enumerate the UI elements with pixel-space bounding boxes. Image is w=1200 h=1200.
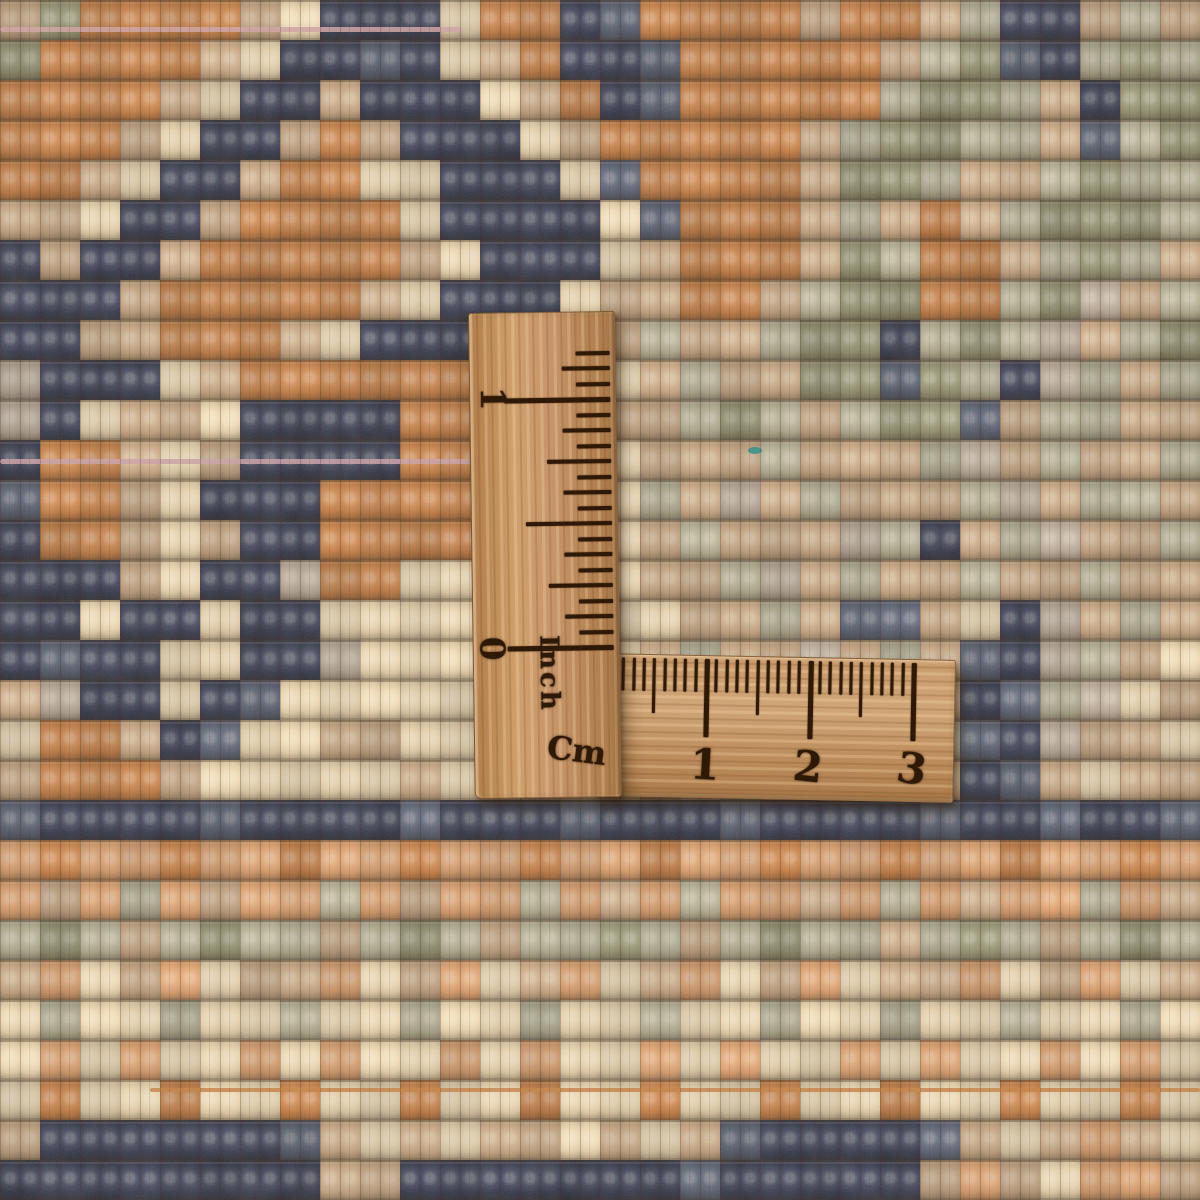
rug-knot [160,160,200,200]
rug-knot [1120,1080,1160,1120]
rug-knot [1160,1120,1200,1160]
rug-knot [400,1000,440,1040]
rug-knot [0,0,40,40]
rug-knot [1120,800,1160,840]
rug-knot [800,200,840,240]
rug-knot [800,480,840,520]
rug-knot [280,600,320,640]
rug-knot [920,280,960,320]
rug-knot [0,360,40,400]
rug-knot [680,840,720,880]
rug-knot [0,680,40,720]
rug-knot [320,1120,360,1160]
rug-knot [240,1120,280,1160]
rug-knot [480,200,520,240]
rug-knot [840,600,880,640]
rug-knot [160,200,200,240]
rug-knot [680,120,720,160]
rug-knot [960,240,1000,280]
rug-knot [760,600,800,640]
rug-knot [200,40,240,80]
rug-knot [40,40,80,80]
rug-knot [720,160,760,200]
rug-knot [1040,400,1080,440]
rug-knot [280,1080,320,1120]
rug-knot [1000,120,1040,160]
rug-knot [160,0,200,40]
rug-knot [800,1160,840,1200]
rug-knot [1000,880,1040,920]
rug-knot [880,1080,920,1120]
rug-knot [400,960,440,1000]
rug-knot [560,960,600,1000]
rug-knot [40,720,80,760]
rug-knot [240,200,280,240]
rug-knot [440,1160,480,1200]
rug-knot [360,880,400,920]
rug-knot [880,1160,920,1200]
rug-knot [920,480,960,520]
rug-knot [120,720,160,760]
inch-tick [549,583,613,588]
rug-knot [880,960,920,1000]
rug-knot [1040,1120,1080,1160]
rug-knot [200,1160,240,1200]
rug-knot [40,840,80,880]
rug-knot [160,880,200,920]
rug-knot [960,40,1000,80]
rug-knot [800,320,840,360]
cm-tick [746,660,750,693]
rug-knot [840,1080,880,1120]
rug-knot [880,480,920,520]
rug-knot [920,160,960,200]
rug-knot [1080,520,1120,560]
rug-knot [160,480,200,520]
rug-knot [240,240,280,280]
rug-knot [480,1160,520,1200]
rug-knot [160,920,200,960]
rug-knot [960,160,1000,200]
rug-knot [360,800,400,840]
rug-knot [1120,680,1160,720]
rug-knot [80,560,120,600]
rug-knot [880,360,920,400]
rug-knot [120,1080,160,1120]
rug-knot [200,920,240,960]
rug-knot [400,1080,440,1120]
rug-knot [320,960,360,1000]
rug-knot [320,760,360,800]
rug-knot [720,880,760,920]
rug-knot [840,800,880,840]
rug-knot [80,1040,120,1080]
cm-unit-label: Cm [545,731,608,770]
rug-knot [1000,320,1040,360]
rug-knot [80,1120,120,1160]
rug-knot [240,80,280,120]
rug-knot [480,840,520,880]
rug-knot [920,600,960,640]
rug-knot [1000,520,1040,560]
rug-knot [1000,80,1040,120]
rug-knot [320,920,360,960]
rug-knot [640,1080,680,1120]
rug-knot [440,0,480,40]
rug-knot [1040,1160,1080,1200]
rug-knot [1160,960,1200,1000]
rug-knot [1040,320,1080,360]
rug-knot [440,120,480,160]
rug-knot [80,1000,120,1040]
rug-knot [640,600,680,640]
rug-knot [240,640,280,680]
rug-knot [960,1080,1000,1120]
rug-knot [320,800,360,840]
rug-knot [240,120,280,160]
rug-knot [680,880,720,920]
rug-knot [680,40,720,80]
rug-knot [240,560,280,600]
rug-knot [840,320,880,360]
rug-knot [1080,1040,1120,1080]
rug-knot [1120,1000,1160,1040]
rug-knot [600,1120,640,1160]
rug-knot [1160,840,1200,880]
rug-knot [1120,520,1160,560]
rug-knot [0,560,40,600]
rug-knot [680,360,720,400]
rug-knot [40,520,80,560]
rug-knot [160,800,200,840]
cm-tick [849,662,853,695]
rug-knot [40,200,80,240]
rug-knot [0,720,40,760]
rug-knot [960,600,1000,640]
cm-tick [766,660,770,693]
cm-tick [642,658,646,691]
rug-knot [440,960,480,1000]
rug-knot [80,120,120,160]
rug-knot [840,120,880,160]
rug-knot [40,1000,80,1040]
rug-knot [680,520,720,560]
rug-knot [400,40,440,80]
rug-knot [280,320,320,360]
cm-tick [777,660,781,693]
rug-knot [0,1080,40,1120]
rug-knot [120,360,160,400]
rug-knot [520,1000,560,1040]
rug-knot [40,240,80,280]
rug-knot [1080,800,1120,840]
cm-tick [621,658,625,691]
rug-knot [240,840,280,880]
rug-knot [120,1160,160,1200]
rug-knot [200,1120,240,1160]
rug-knot [320,240,360,280]
rug-knot [1080,920,1120,960]
rug-knot [1120,1040,1160,1080]
rug-knot [840,440,880,480]
rug-knot [440,200,480,240]
rug-knot [400,1160,440,1200]
rug-knot [240,920,280,960]
rug-knot [840,480,880,520]
cm-tick [663,658,667,691]
rug-knot [320,200,360,240]
rug-knot [40,360,80,400]
rug-knot [840,80,880,120]
rug-knot [240,0,280,40]
rug-knot [80,520,120,560]
rug-knot [0,120,40,160]
rug-knot [480,1040,520,1080]
rug-knot [840,520,880,560]
rug-knot [160,520,200,560]
rug-knot [400,240,440,280]
rug-knot [520,160,560,200]
rug-knot [160,1120,200,1160]
rug-knot [40,1040,80,1080]
rug-knot [0,840,40,880]
inch-tick [579,599,613,603]
rug-knot [880,600,920,640]
rug-knot [360,1040,400,1080]
rug-knot [40,280,80,320]
rug-knot [120,1120,160,1160]
rug-knot [1120,320,1160,360]
rug-knot [280,880,320,920]
rug-knot [400,400,440,440]
rug-knot [400,760,440,800]
rug-knot [760,400,800,440]
rug-knot [160,1000,200,1040]
rug-knot [0,480,40,520]
rug-knot [720,280,760,320]
rug-knot [1080,160,1120,200]
rug-knot [1160,920,1200,960]
rug-knot [880,120,920,160]
rug-knot [120,640,160,680]
rug-knot [360,560,400,600]
rug-knot [280,1000,320,1040]
rug-knot [480,40,520,80]
rug-knot [640,1000,680,1040]
rug-knot [360,1080,400,1120]
inch-tick [576,413,610,417]
rug-knot [1000,200,1040,240]
rug-knot [1000,960,1040,1000]
rug-knot [1120,80,1160,120]
rug-knot [920,440,960,480]
rug-knot [880,800,920,840]
rug-knot [400,480,440,520]
inch-tick [576,382,610,386]
rug-knot [320,320,360,360]
rug-knot [520,1120,560,1160]
rug-knot [1000,400,1040,440]
cm-tick [828,661,832,694]
rug-knot [200,800,240,840]
rug-knot [160,400,200,440]
rug-knot [120,1040,160,1080]
rug-knot [1040,360,1080,400]
rug-knot [1120,40,1160,80]
rug-knot [280,280,320,320]
rug-knot [560,200,600,240]
rug-knot [440,880,480,920]
rug-knot [320,1160,360,1200]
rug-knot [680,920,720,960]
rug-knot [640,1040,680,1080]
rug-knot [920,1080,960,1120]
rug-knot [120,880,160,920]
rug-knot [680,400,720,440]
rug-knot [200,640,240,680]
rug-knot [920,200,960,240]
rug-knot [520,40,560,80]
rug-knot [880,1000,920,1040]
rug-knot [400,680,440,720]
rug-knot [240,160,280,200]
cm-tick [870,662,874,695]
rug-knot [40,0,80,40]
rug-knot [800,800,840,840]
rug-knot [280,400,320,440]
rug-knot [360,640,400,680]
rug-knot [200,1040,240,1080]
rug-knot [1000,1000,1040,1040]
cm-tick [891,663,895,696]
rug-knot [320,680,360,720]
rug-knot [80,680,120,720]
rug-knot [960,400,1000,440]
rug-knot [880,40,920,80]
rug-knot [600,1000,640,1040]
rug-knot [320,640,360,680]
rug-knot [1160,680,1200,720]
rug-knot [400,1040,440,1080]
rug-knot [400,0,440,40]
rug-knot [40,960,80,1000]
rug-knot [160,80,200,120]
rug-knot [0,760,40,800]
rug-knot [880,400,920,440]
rug-knot [280,800,320,840]
rug-knot [640,440,680,480]
rug-knot [760,80,800,120]
rug-knot [840,560,880,600]
rug-knot [1000,840,1040,880]
rug-knot [320,80,360,120]
inch-tick [578,537,612,541]
rug-knot [1080,440,1120,480]
rug-knot [720,0,760,40]
rug-knot [1040,160,1080,200]
rug-knot [1160,280,1200,320]
rug-knot [840,0,880,40]
rug-knot [1040,880,1080,920]
rug-knot [960,520,1000,560]
rug-knot [1120,960,1160,1000]
rug-knot [800,880,840,920]
rug-knot [760,1120,800,1160]
rug-knot [120,760,160,800]
rug-knot [1040,960,1080,1000]
rug-knot [640,120,680,160]
rug-knot [520,120,560,160]
rug-knot [920,520,960,560]
rug-knot [280,200,320,240]
rug-knot [960,80,1000,120]
rug-knot [400,200,440,240]
rug-knot [400,600,440,640]
rug-knot [160,360,200,400]
rug-knot [360,1000,400,1040]
rug-knot [720,240,760,280]
rug-knot [40,1160,80,1200]
rug-knot [280,840,320,880]
rug-knot [880,840,920,880]
inch-tick [563,490,611,495]
rug-knot [520,1160,560,1200]
rug-knot [320,360,360,400]
rug-knot [0,320,40,360]
inch-tick [577,444,611,448]
rug-knot [840,960,880,1000]
rug-knot [720,1120,760,1160]
rug-knot [1160,720,1200,760]
rug-knot [320,400,360,440]
rug-knot [400,720,440,760]
rug-knot [960,360,1000,400]
rug-knot [640,480,680,520]
rug-knot [1160,80,1200,120]
rug-knot [280,0,320,40]
rug-knot [80,80,120,120]
rug-knot [1120,560,1160,600]
rug-knot [360,1160,400,1200]
rug-knot [680,440,720,480]
rug-knot [1040,280,1080,320]
rug-knot [400,320,440,360]
rug-knot [800,1040,840,1080]
rug-knot [1120,400,1160,440]
rug-knot [1040,200,1080,240]
rug-knot [640,560,680,600]
rug-knot [320,560,360,600]
rug-knot [720,560,760,600]
rug-knot [80,0,120,40]
cm-tick [735,660,739,693]
rug-knot [640,960,680,1000]
rug-knot [440,40,480,80]
rug-knot [1000,1080,1040,1120]
rug-knot [1160,1160,1200,1200]
rug-knot [840,280,880,320]
rug-knot [200,720,240,760]
rug-knot [120,40,160,80]
rug-knot [280,160,320,200]
rug-knot [1040,520,1080,560]
rug-knot [1040,1080,1080,1120]
rug-knot [400,360,440,400]
rug-knot [160,280,200,320]
rug-knot [880,320,920,360]
rug-knot [760,280,800,320]
pink-weft-top-thread [0,27,462,32]
